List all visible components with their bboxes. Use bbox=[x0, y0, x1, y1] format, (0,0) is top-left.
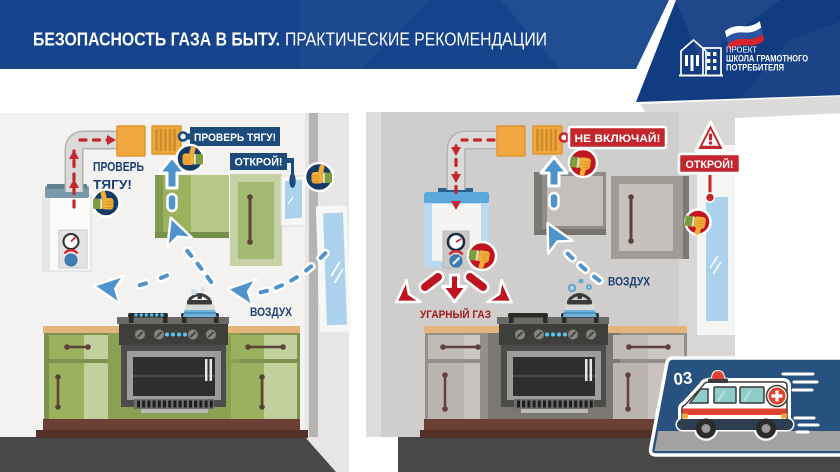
svg-text:УГАРНЫЙ ГАЗ: УГАРНЫЙ ГАЗ bbox=[420, 308, 491, 321]
svg-text:ВОЗДУХ: ВОЗДУХ bbox=[250, 305, 292, 319]
svg-text:ПРОВЕРЬ ТЯГУ!: ПРОВЕРЬ ТЯГУ! bbox=[194, 132, 276, 144]
svg-text:ПРОВЕРЬ: ПРОВЕРЬ bbox=[93, 159, 144, 174]
svg-text:ОТКРОЙ!: ОТКРОЙ! bbox=[235, 156, 283, 169]
svg-text:ОТКРОЙ!: ОТКРОЙ! bbox=[686, 158, 734, 171]
svg-text:НЕ ВКЛЮЧАЙ!: НЕ ВКЛЮЧАЙ! bbox=[575, 132, 661, 145]
svg-text:ПОТРЕБИТЕЛЯ: ПОТРЕБИТЕЛЯ bbox=[726, 63, 784, 73]
svg-text:ТЯГУ!: ТЯГУ! bbox=[93, 177, 132, 192]
svg-text:03: 03 bbox=[673, 368, 694, 389]
svg-text:БЕЗОПАСНОСТЬ ГАЗА В БЫТУ.: БЕЗОПАСНОСТЬ ГАЗА В БЫТУ. bbox=[33, 30, 280, 50]
svg-text:ПРАКТИЧЕСКИЕ РЕКОМЕНДАЦИИ: ПРАКТИЧЕСКИЕ РЕКОМЕНДАЦИИ bbox=[285, 30, 547, 50]
svg-text:ВОЗДУХ: ВОЗДУХ bbox=[608, 277, 650, 289]
